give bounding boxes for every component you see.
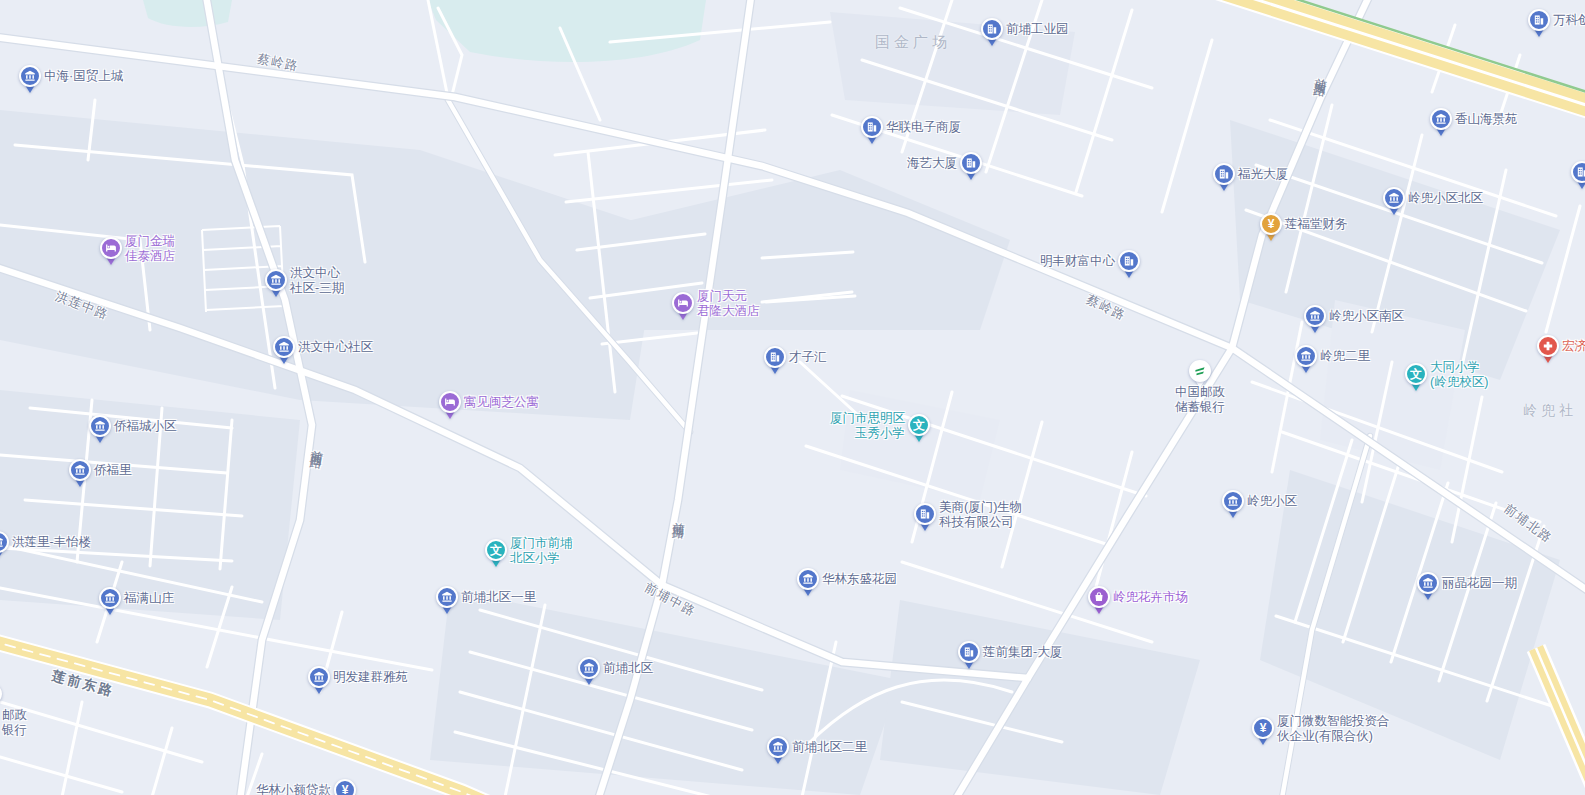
- map-pin-label: 厦门天元君隆大酒店: [697, 289, 760, 319]
- map-pin-label: 中海·国贸上城: [44, 69, 123, 84]
- map-pin-label: 厦门市思明区玉秀小学: [830, 411, 905, 441]
- hotel-bed-icon: [100, 237, 122, 259]
- map-pin-label: 岭兜二里: [1320, 349, 1370, 364]
- area-label: 国金广场: [875, 33, 951, 52]
- map-pin-label: 莲福堂财务: [1285, 217, 1348, 232]
- estate-icon: [1295, 345, 1317, 367]
- map-pin-label: 岭兜小区南区: [1329, 309, 1404, 324]
- yuan-icon: ¥: [1260, 722, 1267, 734]
- china-post-icon: [1189, 360, 1211, 382]
- water-areas: [143, 0, 706, 62]
- map-pin-label: 海艺大厦: [907, 156, 957, 171]
- map-pin-label: 香山海景苑: [1455, 112, 1518, 127]
- yuan-icon: ¥: [1252, 717, 1274, 739]
- map-pin-label: 洪莲里-丰怡楼: [12, 535, 91, 550]
- estate-icon: [89, 415, 111, 437]
- office-building-icon: [764, 346, 786, 368]
- office-building-icon: [958, 641, 980, 663]
- map-pin-label: 明丰财富中心: [1040, 254, 1115, 269]
- estate-icon: [767, 736, 789, 758]
- map-pin-label: 侨福城小区: [114, 419, 177, 434]
- estate-icon: [1430, 108, 1452, 130]
- map-pin-label: 邮政银行: [2, 708, 27, 738]
- estate-icon: [273, 336, 295, 358]
- office-building-icon: [914, 503, 936, 525]
- map-pin-label: 福光大厦: [1238, 167, 1288, 182]
- estate-icon: [578, 657, 600, 679]
- estate-icon: [1304, 305, 1326, 327]
- yuan-icon: ¥: [1268, 218, 1275, 230]
- medical-cross-icon: [1537, 335, 1559, 357]
- hotel-bed-icon: [672, 292, 694, 314]
- map-pin-label: 厦门市前埔北区小学: [510, 536, 573, 566]
- map-pin-label: 侨福里: [94, 463, 132, 478]
- arterial-corner: [1536, 648, 1585, 795]
- map-pin-label: 美商(厦门)生物科技有限公司: [939, 500, 1022, 530]
- office-building-icon: [1213, 163, 1235, 185]
- estate-icon: [308, 666, 330, 688]
- area-label: 岭兜社: [1523, 402, 1577, 420]
- map-pin-label: 才子汇: [789, 350, 827, 365]
- estate-icon: [99, 587, 121, 609]
- estate-icon: [1417, 572, 1439, 594]
- map-pin-label: 洪文中心社区: [298, 340, 373, 355]
- school-icon: 文: [485, 539, 507, 561]
- shopping-bag-icon: [1088, 586, 1110, 608]
- map-pin-label: 洪文中心社区-三期: [290, 266, 344, 296]
- map-pin-label: 厦门金瑞佳泰酒店: [125, 234, 175, 264]
- yuan-icon: ¥: [334, 779, 356, 795]
- map-pin-label: 丽晶花园一期: [1442, 576, 1517, 591]
- map-pin-label: 岭兜小区: [1247, 494, 1297, 509]
- school-icon: 文: [1410, 368, 1422, 380]
- map-pin-label: 福满山庄: [124, 591, 174, 606]
- school-icon: 文: [913, 419, 925, 431]
- map-pin-label: 华林小额贷款: [256, 783, 331, 795]
- office-building-icon: [1528, 9, 1550, 31]
- map-pin-label: 前埔北区一里: [461, 590, 536, 605]
- map-pin-label: 前埔工业园: [1006, 22, 1069, 37]
- map-pin-label: 厦门微数智能投资合伙企业(有限合伙): [1277, 714, 1390, 744]
- map-pin-label: 明发建群雅苑: [333, 670, 408, 685]
- map-pin-label: 前埔北区: [603, 661, 653, 676]
- office-building-icon: [981, 18, 1003, 40]
- map-viewport[interactable]: 蔡岭路蔡岭路洪莲中路前埔西路前埔东路前埔路前埔中路莲前东路前埔北路国金广场岭兜社…: [0, 0, 1585, 795]
- school-icon: 文: [490, 544, 502, 556]
- map-pin-label: 岭兜小区北区: [1408, 191, 1483, 206]
- estate-icon: [69, 459, 91, 481]
- map-pin-label: 华联电子商厦: [886, 120, 961, 135]
- map-pin-label: 大同小学(岭兜校区): [1430, 360, 1488, 390]
- school-icon: 文: [1405, 363, 1427, 385]
- estate-icon: [797, 568, 819, 590]
- map-pin-label: 寓见闽芝公寓: [464, 395, 539, 410]
- map-pin-label: 岭兜花卉市场: [1113, 590, 1188, 605]
- map-pin-label: 华林东盛花园: [822, 572, 897, 587]
- map-pin-label: 莲前集团-大厦: [983, 645, 1062, 660]
- office-building-icon: [960, 152, 982, 174]
- office-building-icon: [1118, 250, 1140, 272]
- map-pin-label: 宏济: [1562, 339, 1585, 354]
- school-icon: 文: [908, 414, 930, 436]
- estate-icon: [1383, 187, 1405, 209]
- road-label: 前埔路: [670, 511, 687, 518]
- hotel-bed-icon: [439, 391, 461, 413]
- yuan-icon: ¥: [1260, 213, 1282, 235]
- map-pin-label: 万科创: [1553, 13, 1585, 28]
- office-building-icon: [861, 116, 883, 138]
- map-pin-label: 前埔北区二里: [792, 740, 867, 755]
- yuan-icon: ¥: [342, 784, 349, 795]
- map-pin-label: 中国邮政储蓄银行: [1175, 385, 1225, 415]
- estate-icon: [1222, 490, 1244, 512]
- estate-icon: [436, 586, 458, 608]
- estate-icon: [265, 269, 287, 291]
- basemap: [0, 0, 1585, 795]
- estate-icon: [19, 65, 41, 87]
